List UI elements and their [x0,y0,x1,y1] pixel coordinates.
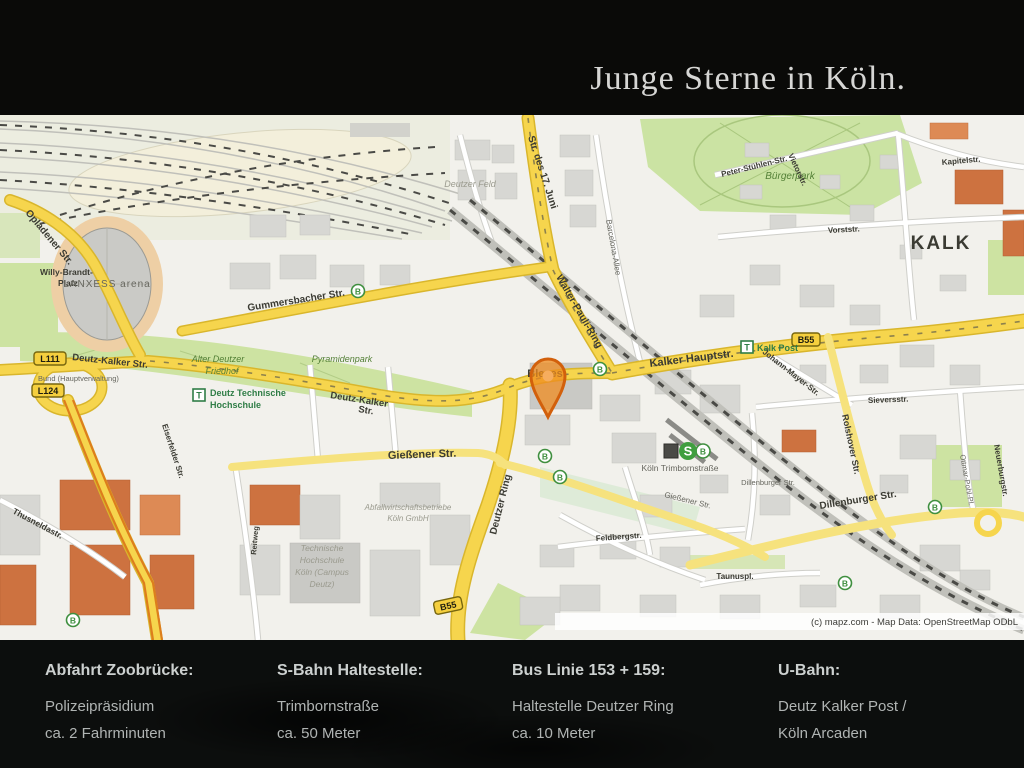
svg-text:B: B [700,447,706,457]
label-kalk: KALK [911,233,972,254]
footer-line: Haltestelle Deutzer Ring [512,693,674,720]
street-label-giessener: Gießener Str. [388,448,457,462]
label-friedhof-2: Friedhof [205,366,240,376]
badge-l111-text: L111 [40,354,60,364]
footer-heading: U-Bahn: [778,662,906,680]
page-title: Junge Sterne in Köln. [590,60,906,98]
svg-text:B: B [842,579,848,589]
footer-heading: Bus Linie 153 + 159: [512,662,674,680]
rail-yard [0,115,470,240]
svg-text:B: B [355,287,361,297]
tram-stop-kalk-post: T [741,341,753,353]
header-bar: Junge Sterne in Köln. [0,0,1024,115]
footer-line: ca. 10 Meter [512,720,674,747]
map-attribution: (c) mapz.com - Map Data: OpenStreetMap O… [555,613,1024,630]
street-label-taunuspl: Taunuspl. [716,572,753,581]
label-lanxess-arena: LANXESS arena [63,279,151,290]
label-friedhof-1: Alter Deutzer [191,354,246,364]
bus-stop-south: B [839,577,852,590]
label-th-koeln-3: Köln (Campus [295,567,350,577]
footer-line: Trimbornstraße [277,693,423,720]
label-trimborn-station: Köln Trimbornstraße [642,463,719,473]
map-svg: L111 L124 B55 B55 B B B B B B B B S [0,115,1024,640]
badge-b55-kalker-text: B55 [798,335,815,345]
label-pyramidenpark: Pyramidenpark [312,354,373,364]
page: Junge Sterne in Köln. [0,0,1024,768]
footer-line: ca. 50 Meter [277,720,423,747]
badge-l111: L111 [34,352,66,365]
footer-col-bus: Bus Linie 153 + 159: Haltestelle Deutzer… [512,662,674,747]
street-label-sieversstr: Sieversstr. [868,395,909,405]
svg-text:B: B [542,452,548,462]
svg-text:B: B [557,473,563,483]
svg-text:B: B [932,503,938,513]
bus-stop-giessener: B [539,450,552,463]
attribution-text: (c) mapz.com - Map Data: OpenStreetMap O… [811,617,1018,628]
label-th-koeln-2: Hochschule [300,555,345,565]
svg-text:T: T [744,343,750,353]
footer-col-sbahn: S-Bahn Haltestelle: Trimbornstraße ca. 5… [277,662,423,747]
label-deutz-th-2: Hochschule [210,400,261,410]
footer-line: ca. 2 Fahrminuten [45,720,193,747]
label-th-koeln-1: Technische [301,543,344,553]
svg-text:B: B [597,365,603,375]
footer-col-ubahn: U-Bahn: Deutz Kalker Post / Köln Arcaden [778,662,906,747]
bus-stop-dillenburger: B [929,501,942,514]
label-willy-brandt-1: Willy-Brandt- [40,267,93,277]
footer-col-zoobruecke: Abfahrt Zoobrücke: Polizeipräsidium ca. … [45,662,193,747]
footer-heading: S-Bahn Haltestelle: [277,662,423,680]
bus-stop-kalker: B [594,363,607,376]
footer-bar: Abfahrt Zoobrücke: Polizeipräsidium ca. … [0,640,1024,768]
sbahn-icon-letter: S [684,444,693,459]
label-abfall-2: Köln GmbH [387,514,429,523]
label-dillenburger-small: Dillenburger Str. [741,478,795,487]
bus-stop-southwest: B [67,614,80,627]
map: L111 L124 B55 B55 B B B B B B B B S [0,115,1024,640]
footer-line: Köln Arcaden [778,720,906,747]
label-th-koeln-4: Deutz) [309,579,334,589]
footer-line: Deutz Kalker Post / [778,693,906,720]
label-deutzer-feld: Deutzer Feld [444,179,497,189]
label-abfall-1: Abfallwirtschaftsbetriebe [364,503,452,512]
bus-stop-gummersbacher: B [352,285,365,298]
badge-l124-text: L124 [38,386,59,396]
badge-l124: L124 [32,384,64,397]
svg-text:B: B [70,616,76,626]
label-hauptverwaltung: Bund (Hauptverwaltung) [38,374,119,383]
footer-heading: Abfahrt Zoobrücke: [45,662,193,680]
tram-stop-deutz-th: T [193,389,205,401]
bus-stop-trimborn: B [696,444,710,458]
bus-stop-ring-south: B [554,471,567,484]
label-deutz-th-1: Deutz Technische [210,388,286,398]
tram-icon-letter: T [196,391,202,401]
street-label-vorststr: Vorststr. [828,224,860,235]
footer-line: Polizeipräsidium [45,693,193,720]
